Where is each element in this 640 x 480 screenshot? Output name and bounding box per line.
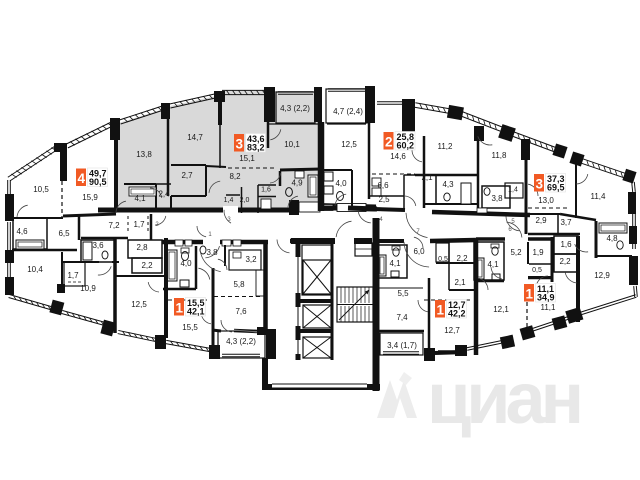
svg-text:15,1: 15,1: [239, 154, 255, 163]
svg-text:7,4: 7,4: [396, 313, 408, 322]
svg-text:2,4: 2,4: [158, 190, 170, 199]
svg-text:2,2: 2,2: [456, 254, 468, 263]
svg-text:4: 4: [77, 171, 85, 186]
svg-text:2,9: 2,9: [535, 216, 547, 225]
svg-text:3,2: 3,2: [245, 255, 257, 264]
svg-text:5,2: 5,2: [510, 248, 522, 257]
svg-text:3,8: 3,8: [491, 194, 503, 203]
svg-text:1: 1: [175, 301, 183, 316]
svg-text:10,1: 10,1: [284, 140, 300, 149]
svg-text:циан: циан: [427, 359, 580, 439]
svg-text:11,4: 11,4: [591, 192, 607, 201]
svg-text:8,2: 8,2: [229, 172, 241, 181]
svg-text:0,5: 0,5: [532, 267, 542, 274]
svg-text:83,2: 83,2: [247, 143, 265, 153]
svg-text:4,9: 4,9: [291, 179, 303, 188]
svg-text:1,7: 1,7: [133, 220, 145, 229]
svg-text:2,1: 2,1: [421, 173, 433, 182]
svg-text:69,5: 69,5: [547, 183, 565, 193]
svg-text:1,7: 1,7: [67, 271, 79, 280]
svg-text:12,5: 12,5: [341, 140, 357, 149]
svg-text:6,0: 6,0: [413, 247, 425, 256]
svg-text:60,2: 60,2: [397, 141, 415, 151]
svg-text:1,9: 1,9: [532, 248, 544, 257]
svg-text:5,5: 5,5: [397, 289, 409, 298]
svg-text:2,0: 2,0: [240, 197, 250, 204]
svg-text:1,4: 1,4: [224, 197, 234, 204]
svg-text:15,9: 15,9: [82, 193, 98, 202]
svg-text:13,8: 13,8: [136, 150, 152, 159]
svg-text:14,7: 14,7: [187, 133, 203, 142]
svg-text:7,2: 7,2: [108, 221, 120, 230]
svg-text:10,9: 10,9: [80, 284, 96, 293]
svg-text:3,4 (1,7): 3,4 (1,7): [387, 341, 417, 350]
svg-text:7,6: 7,6: [235, 307, 247, 316]
svg-text:6,6: 6,6: [377, 181, 389, 190]
svg-text:4,6: 4,6: [16, 227, 28, 236]
svg-text:1: 1: [436, 303, 444, 318]
svg-text:4,3 (2,2): 4,3 (2,2): [226, 337, 256, 346]
svg-text:4,3 (2,2): 4,3 (2,2): [280, 104, 310, 113]
svg-text:10,5: 10,5: [33, 185, 49, 194]
svg-text:3: 3: [235, 137, 243, 152]
svg-text:4,1: 4,1: [487, 260, 499, 269]
svg-text:12,1: 12,1: [493, 305, 509, 314]
svg-text:4,0: 4,0: [180, 259, 192, 268]
svg-text:0,5: 0,5: [438, 256, 448, 263]
svg-text:11,2: 11,2: [438, 142, 454, 151]
svg-text:2,2: 2,2: [141, 261, 153, 270]
svg-text:12,9: 12,9: [594, 271, 610, 280]
svg-text:90,5: 90,5: [89, 177, 107, 187]
svg-text:12,7: 12,7: [444, 326, 460, 335]
svg-text:2,8: 2,8: [136, 243, 148, 252]
svg-text:11,1: 11,1: [541, 303, 557, 312]
svg-text:42,1: 42,1: [187, 307, 205, 317]
svg-text:4,3: 4,3: [442, 180, 454, 189]
svg-text:11,8: 11,8: [492, 151, 508, 160]
svg-text:34,9: 34,9: [537, 293, 555, 303]
svg-text:2,2: 2,2: [559, 257, 571, 266]
svg-text:2,1: 2,1: [454, 278, 466, 287]
svg-text:3,7: 3,7: [560, 218, 572, 227]
svg-text:4,1: 4,1: [134, 194, 146, 203]
svg-text:1,4: 1,4: [508, 187, 518, 194]
svg-text:15,5: 15,5: [182, 323, 198, 332]
svg-text:4,7 (2,4): 4,7 (2,4): [333, 107, 363, 116]
svg-text:1,6: 1,6: [261, 187, 271, 194]
svg-text:10,4: 10,4: [27, 265, 43, 274]
svg-text:5,8: 5,8: [233, 280, 245, 289]
svg-text:42,2: 42,2: [448, 309, 466, 319]
svg-text:2: 2: [385, 135, 393, 150]
svg-text:6,5: 6,5: [58, 229, 70, 238]
svg-text:1,6: 1,6: [560, 240, 572, 249]
svg-text:2,5: 2,5: [378, 195, 390, 204]
svg-text:14,6: 14,6: [390, 152, 406, 161]
svg-text:12,5: 12,5: [131, 300, 147, 309]
svg-text:4,1: 4,1: [389, 259, 401, 268]
svg-text:3: 3: [535, 177, 543, 192]
svg-text:3,6: 3,6: [92, 241, 104, 250]
svg-text:13,0: 13,0: [538, 196, 554, 205]
svg-text:4,0: 4,0: [335, 179, 347, 188]
svg-text:1: 1: [525, 287, 533, 302]
svg-text:3,8: 3,8: [206, 248, 218, 257]
svg-text:4,8: 4,8: [606, 234, 618, 243]
svg-text:2,7: 2,7: [181, 171, 193, 180]
